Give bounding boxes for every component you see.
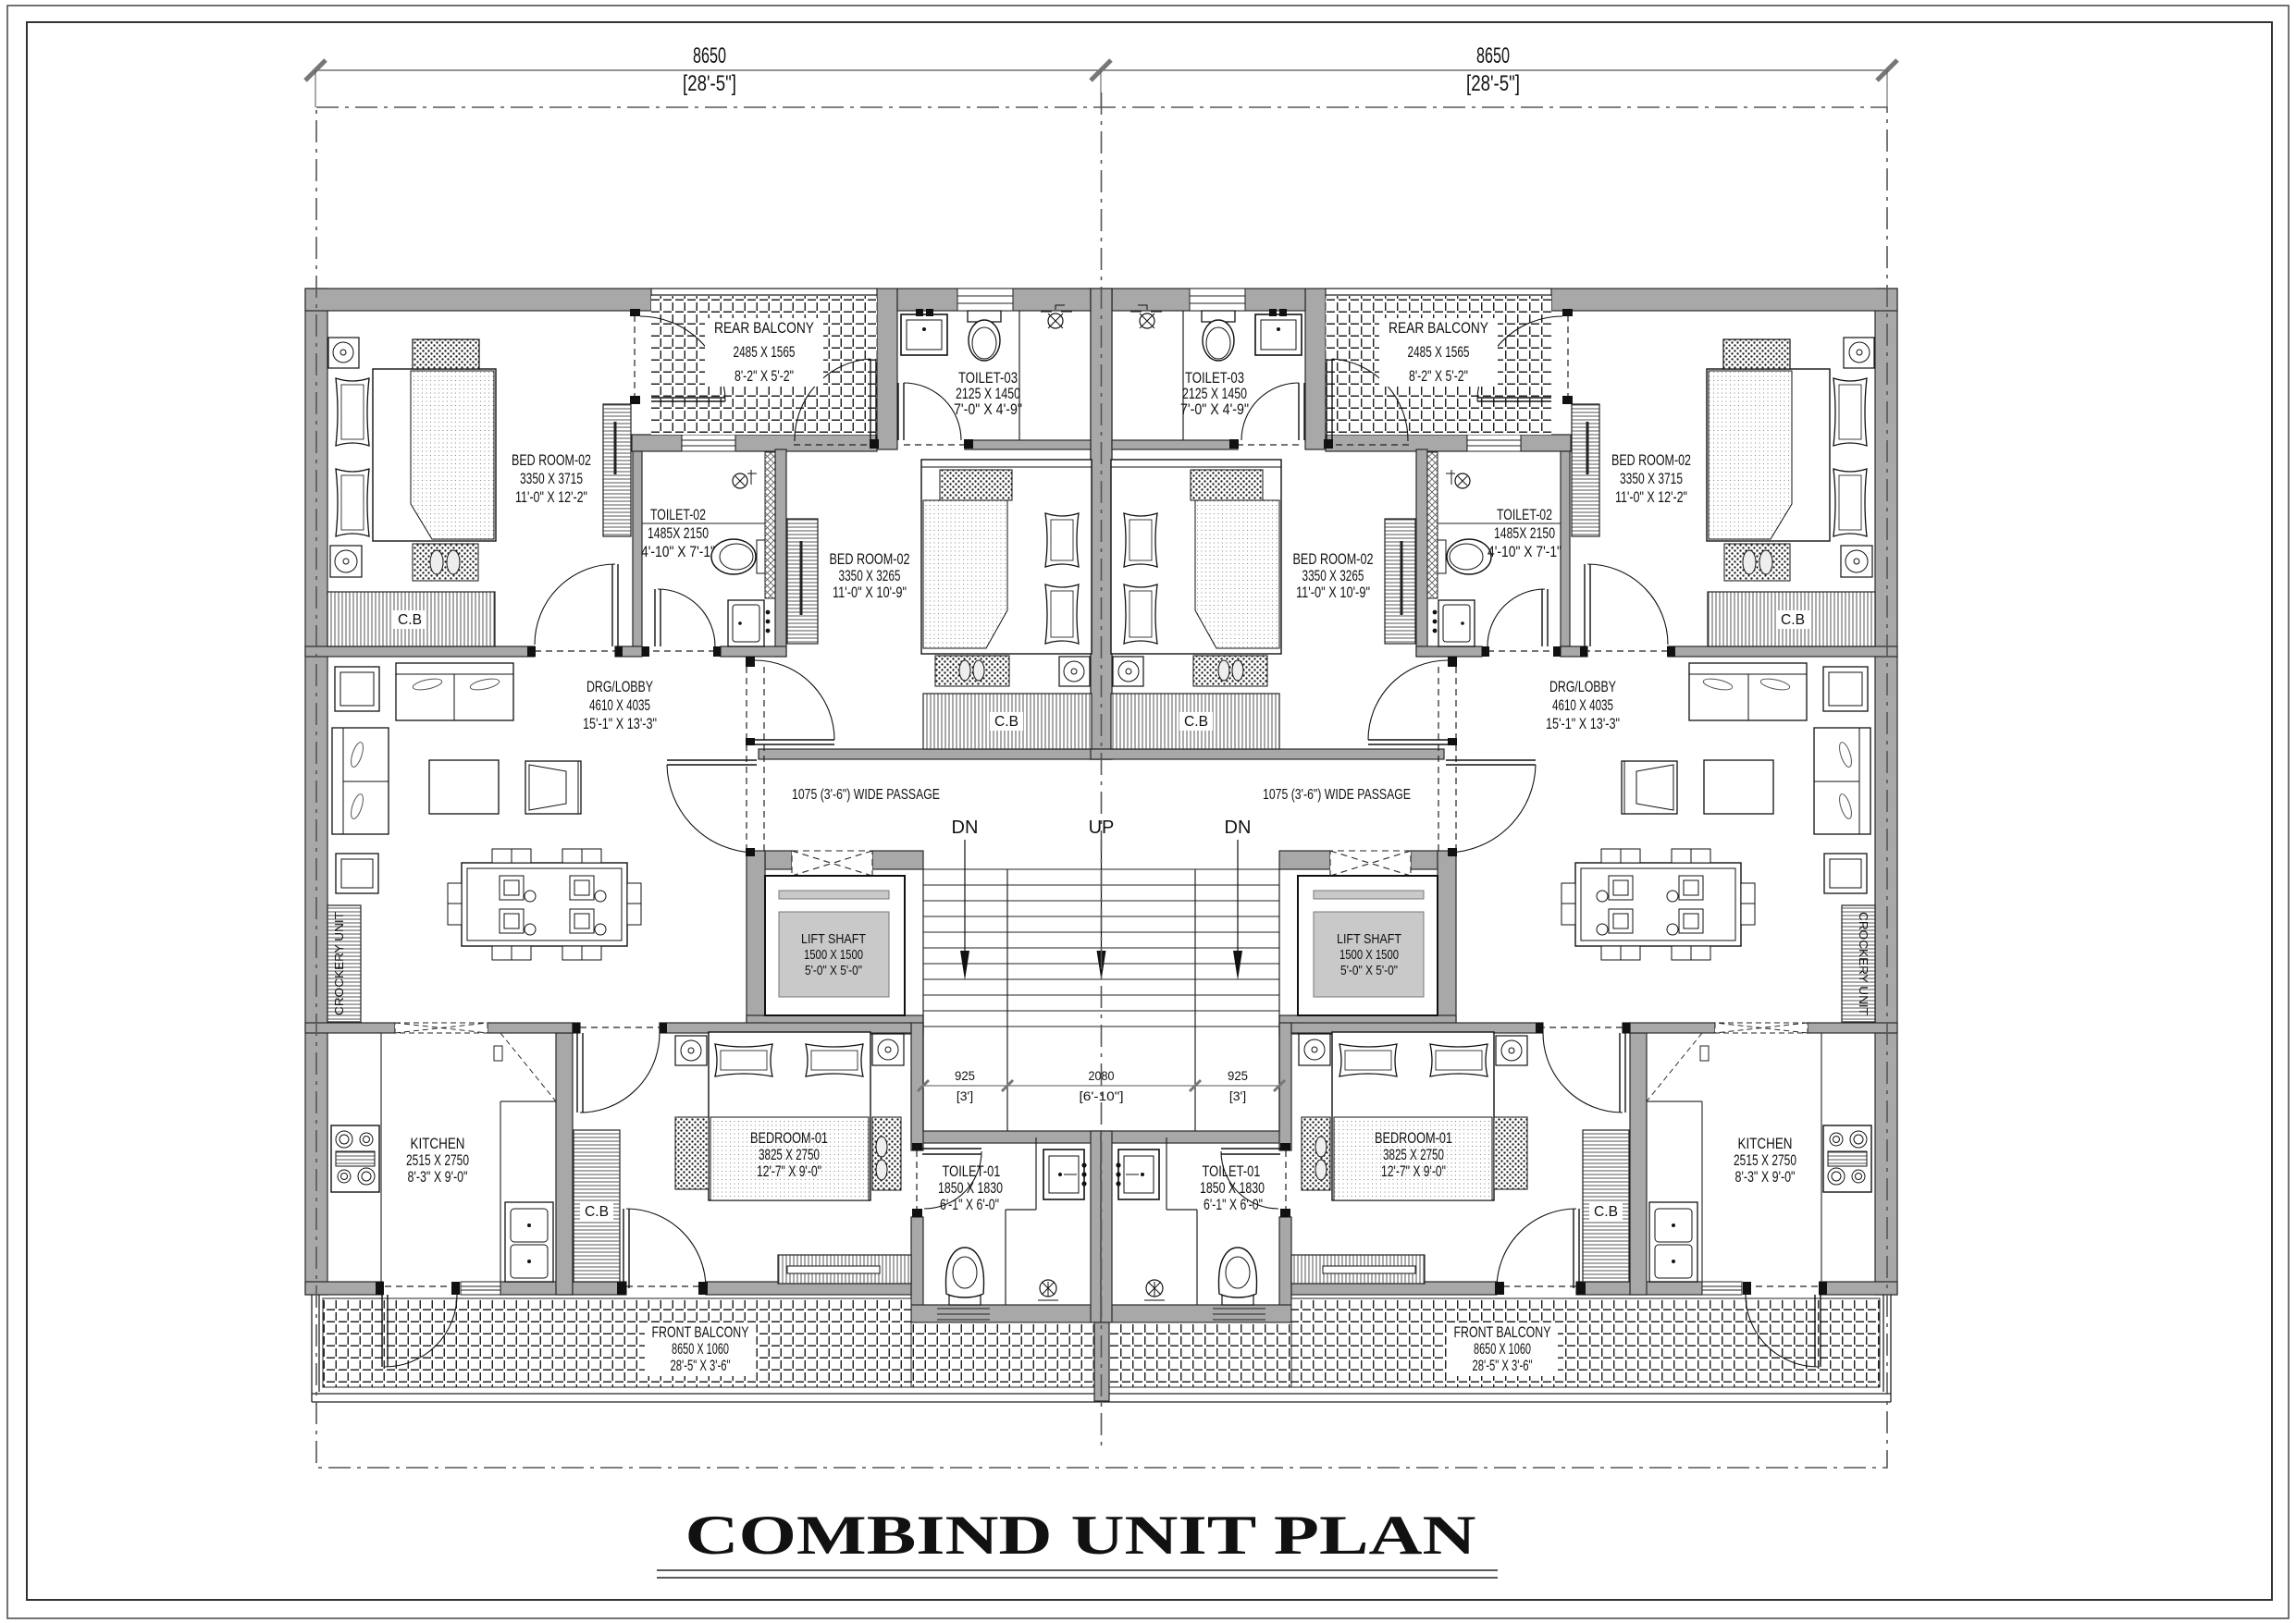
svg-text:FRONT BALCONY: FRONT BALCONY <box>1454 1323 1551 1341</box>
svg-text:7'-0" X 4'-9": 7'-0" X 4'-9" <box>1180 400 1249 418</box>
svg-text:BED ROOM-02: BED ROOM-02 <box>512 451 591 469</box>
svg-text:[3']: [3'] <box>1229 1088 1246 1103</box>
svg-text:REAR BALCONY: REAR BALCONY <box>1389 319 1488 337</box>
svg-text:1075 (3'-6") WIDE PASSAGE: 1075 (3'-6") WIDE PASSAGE <box>1263 787 1411 803</box>
svg-text:1500 X 1500: 1500 X 1500 <box>1339 947 1399 963</box>
svg-text:C.B: C.B <box>585 1204 609 1220</box>
svg-text:7'-0" X 4'-9": 7'-0" X 4'-9" <box>954 400 1022 418</box>
svg-text:11'-0" X 10'-9": 11'-0" X 10'-9" <box>1296 584 1370 601</box>
svg-text:8650 X 1060: 8650 X 1060 <box>672 1340 729 1358</box>
svg-text:8650: 8650 <box>1476 43 1510 68</box>
svg-text:4'-10" X 7'-1": 4'-10" X 7'-1" <box>641 543 715 560</box>
svg-text:BEDROOM-01: BEDROOM-01 <box>750 1129 828 1147</box>
svg-text:8'-2" X 5'-2": 8'-2" X 5'-2" <box>1409 367 1468 385</box>
svg-text:DN: DN <box>1225 818 1252 838</box>
svg-text:LIFT SHAFT: LIFT SHAFT <box>801 931 866 947</box>
svg-text:LIFT SHAFT: LIFT SHAFT <box>1337 931 1401 947</box>
svg-text:BEDROOM-01: BEDROOM-01 <box>1375 1129 1452 1147</box>
svg-text:[28'-5"]: [28'-5"] <box>683 71 736 96</box>
svg-text:12'-7" X 9'-0": 12'-7" X 9'-0" <box>757 1162 821 1180</box>
svg-text:8650: 8650 <box>693 43 726 68</box>
svg-text:TOILET-02: TOILET-02 <box>650 506 706 523</box>
svg-text:C.B: C.B <box>994 714 1018 730</box>
svg-text:1485X 2150: 1485X 2150 <box>1494 524 1555 542</box>
svg-text:3350 X 3715: 3350 X 3715 <box>1620 470 1683 487</box>
svg-text:3825 X 2750: 3825 X 2750 <box>1383 1146 1444 1163</box>
svg-text:4610 X 4035: 4610 X 4035 <box>589 696 650 714</box>
svg-text:C.B: C.B <box>398 612 422 628</box>
svg-text:6'-1" X 6'-0": 6'-1" X 6'-0" <box>1204 1196 1263 1213</box>
svg-text:DRG/LOBBY: DRG/LOBBY <box>586 678 653 695</box>
svg-text:3350 X 3265: 3350 X 3265 <box>839 567 901 584</box>
svg-text:28'-5" X 3'-6": 28'-5" X 3'-6" <box>671 1357 731 1374</box>
svg-text:C.B: C.B <box>1594 1204 1618 1220</box>
svg-text:5'-0" X 5'-0": 5'-0" X 5'-0" <box>1340 963 1398 978</box>
svg-text:925: 925 <box>1228 1068 1248 1083</box>
svg-text:3350 X 3715: 3350 X 3715 <box>520 470 583 487</box>
svg-text:12'-7" X 9'-0": 12'-7" X 9'-0" <box>1381 1162 1446 1180</box>
svg-text:BED ROOM-02: BED ROOM-02 <box>1293 550 1374 568</box>
svg-text:C.B: C.B <box>1781 612 1805 628</box>
svg-text:DRG/LOBBY: DRG/LOBBY <box>1549 678 1616 695</box>
svg-text:3825 X 2750: 3825 X 2750 <box>759 1146 820 1163</box>
svg-text:8'-3" X 9'-0": 8'-3" X 9'-0" <box>408 1168 468 1186</box>
svg-text:8'-2" X 5'-2": 8'-2" X 5'-2" <box>734 367 794 385</box>
svg-text:8650 X 1060: 8650 X 1060 <box>1474 1340 1531 1358</box>
svg-text:REAR BALCONY: REAR BALCONY <box>714 319 814 337</box>
svg-text:BED ROOM-02: BED ROOM-02 <box>1611 451 1691 469</box>
svg-text:2515 X 2750: 2515 X 2750 <box>406 1151 469 1169</box>
svg-text:TOILET-02: TOILET-02 <box>1497 506 1552 523</box>
svg-text:1500 X 1500: 1500 X 1500 <box>804 947 863 963</box>
svg-text:TOILET-01: TOILET-01 <box>1203 1162 1261 1180</box>
svg-text:CROCKERY UNIT: CROCKERY UNIT <box>332 912 346 1015</box>
svg-text:CROCKERY UNIT: CROCKERY UNIT <box>1857 912 1870 1015</box>
svg-text:2485 X 1565: 2485 X 1565 <box>1408 343 1470 361</box>
svg-text:11'-0" X 12'-2": 11'-0" X 12'-2" <box>1615 488 1687 506</box>
svg-text:5'-0" X 5'-0": 5'-0" X 5'-0" <box>805 963 862 978</box>
svg-text:1075 (3'-6") WIDE PASSAGE: 1075 (3'-6") WIDE PASSAGE <box>792 787 940 803</box>
svg-text:2485 X 1565: 2485 X 1565 <box>734 343 796 361</box>
svg-text:DN: DN <box>952 818 979 838</box>
svg-text:2515 X 2750: 2515 X 2750 <box>1734 1151 1796 1169</box>
svg-text:KITCHEN: KITCHEN <box>1738 1135 1793 1152</box>
svg-text:11'-0" X 12'-2": 11'-0" X 12'-2" <box>515 488 587 506</box>
svg-text:4610 X 4035: 4610 X 4035 <box>1552 696 1613 714</box>
svg-text:[3']: [3'] <box>957 1088 973 1103</box>
svg-text:8'-3" X 9'-0": 8'-3" X 9'-0" <box>1735 1168 1796 1186</box>
svg-text:C.B: C.B <box>1184 714 1208 730</box>
svg-text:28'-5" X 3'-6": 28'-5" X 3'-6" <box>1473 1357 1533 1374</box>
svg-text:15'-1" X 13'-3": 15'-1" X 13'-3" <box>583 715 657 732</box>
svg-text:15'-1" X 13'-3": 15'-1" X 13'-3" <box>1546 715 1620 732</box>
svg-text:4'-10" X 7'-1": 4'-10" X 7'-1" <box>1487 543 1562 560</box>
svg-text:1850 X 1830: 1850 X 1830 <box>938 1179 1003 1197</box>
svg-text:TOILET-01: TOILET-01 <box>943 1162 1001 1180</box>
svg-text:1485X 2150: 1485X 2150 <box>648 524 709 542</box>
svg-text:1850 X 1830: 1850 X 1830 <box>1200 1179 1265 1197</box>
svg-text:11'-0" X 10'-9": 11'-0" X 10'-9" <box>833 584 907 601</box>
svg-text:KITCHEN: KITCHEN <box>411 1135 465 1152</box>
svg-text:3350 X 3265: 3350 X 3265 <box>1302 567 1364 584</box>
svg-text:COMBIND UNIT PLAN: COMBIND UNIT PLAN <box>685 1505 1476 1566</box>
svg-text:6'-1" X 6'-0": 6'-1" X 6'-0" <box>940 1196 999 1213</box>
svg-text:925: 925 <box>955 1068 975 1083</box>
svg-text:FRONT BALCONY: FRONT BALCONY <box>652 1323 749 1341</box>
svg-text:BED ROOM-02: BED ROOM-02 <box>830 550 910 568</box>
svg-text:[28'-5"]: [28'-5"] <box>1466 71 1520 96</box>
